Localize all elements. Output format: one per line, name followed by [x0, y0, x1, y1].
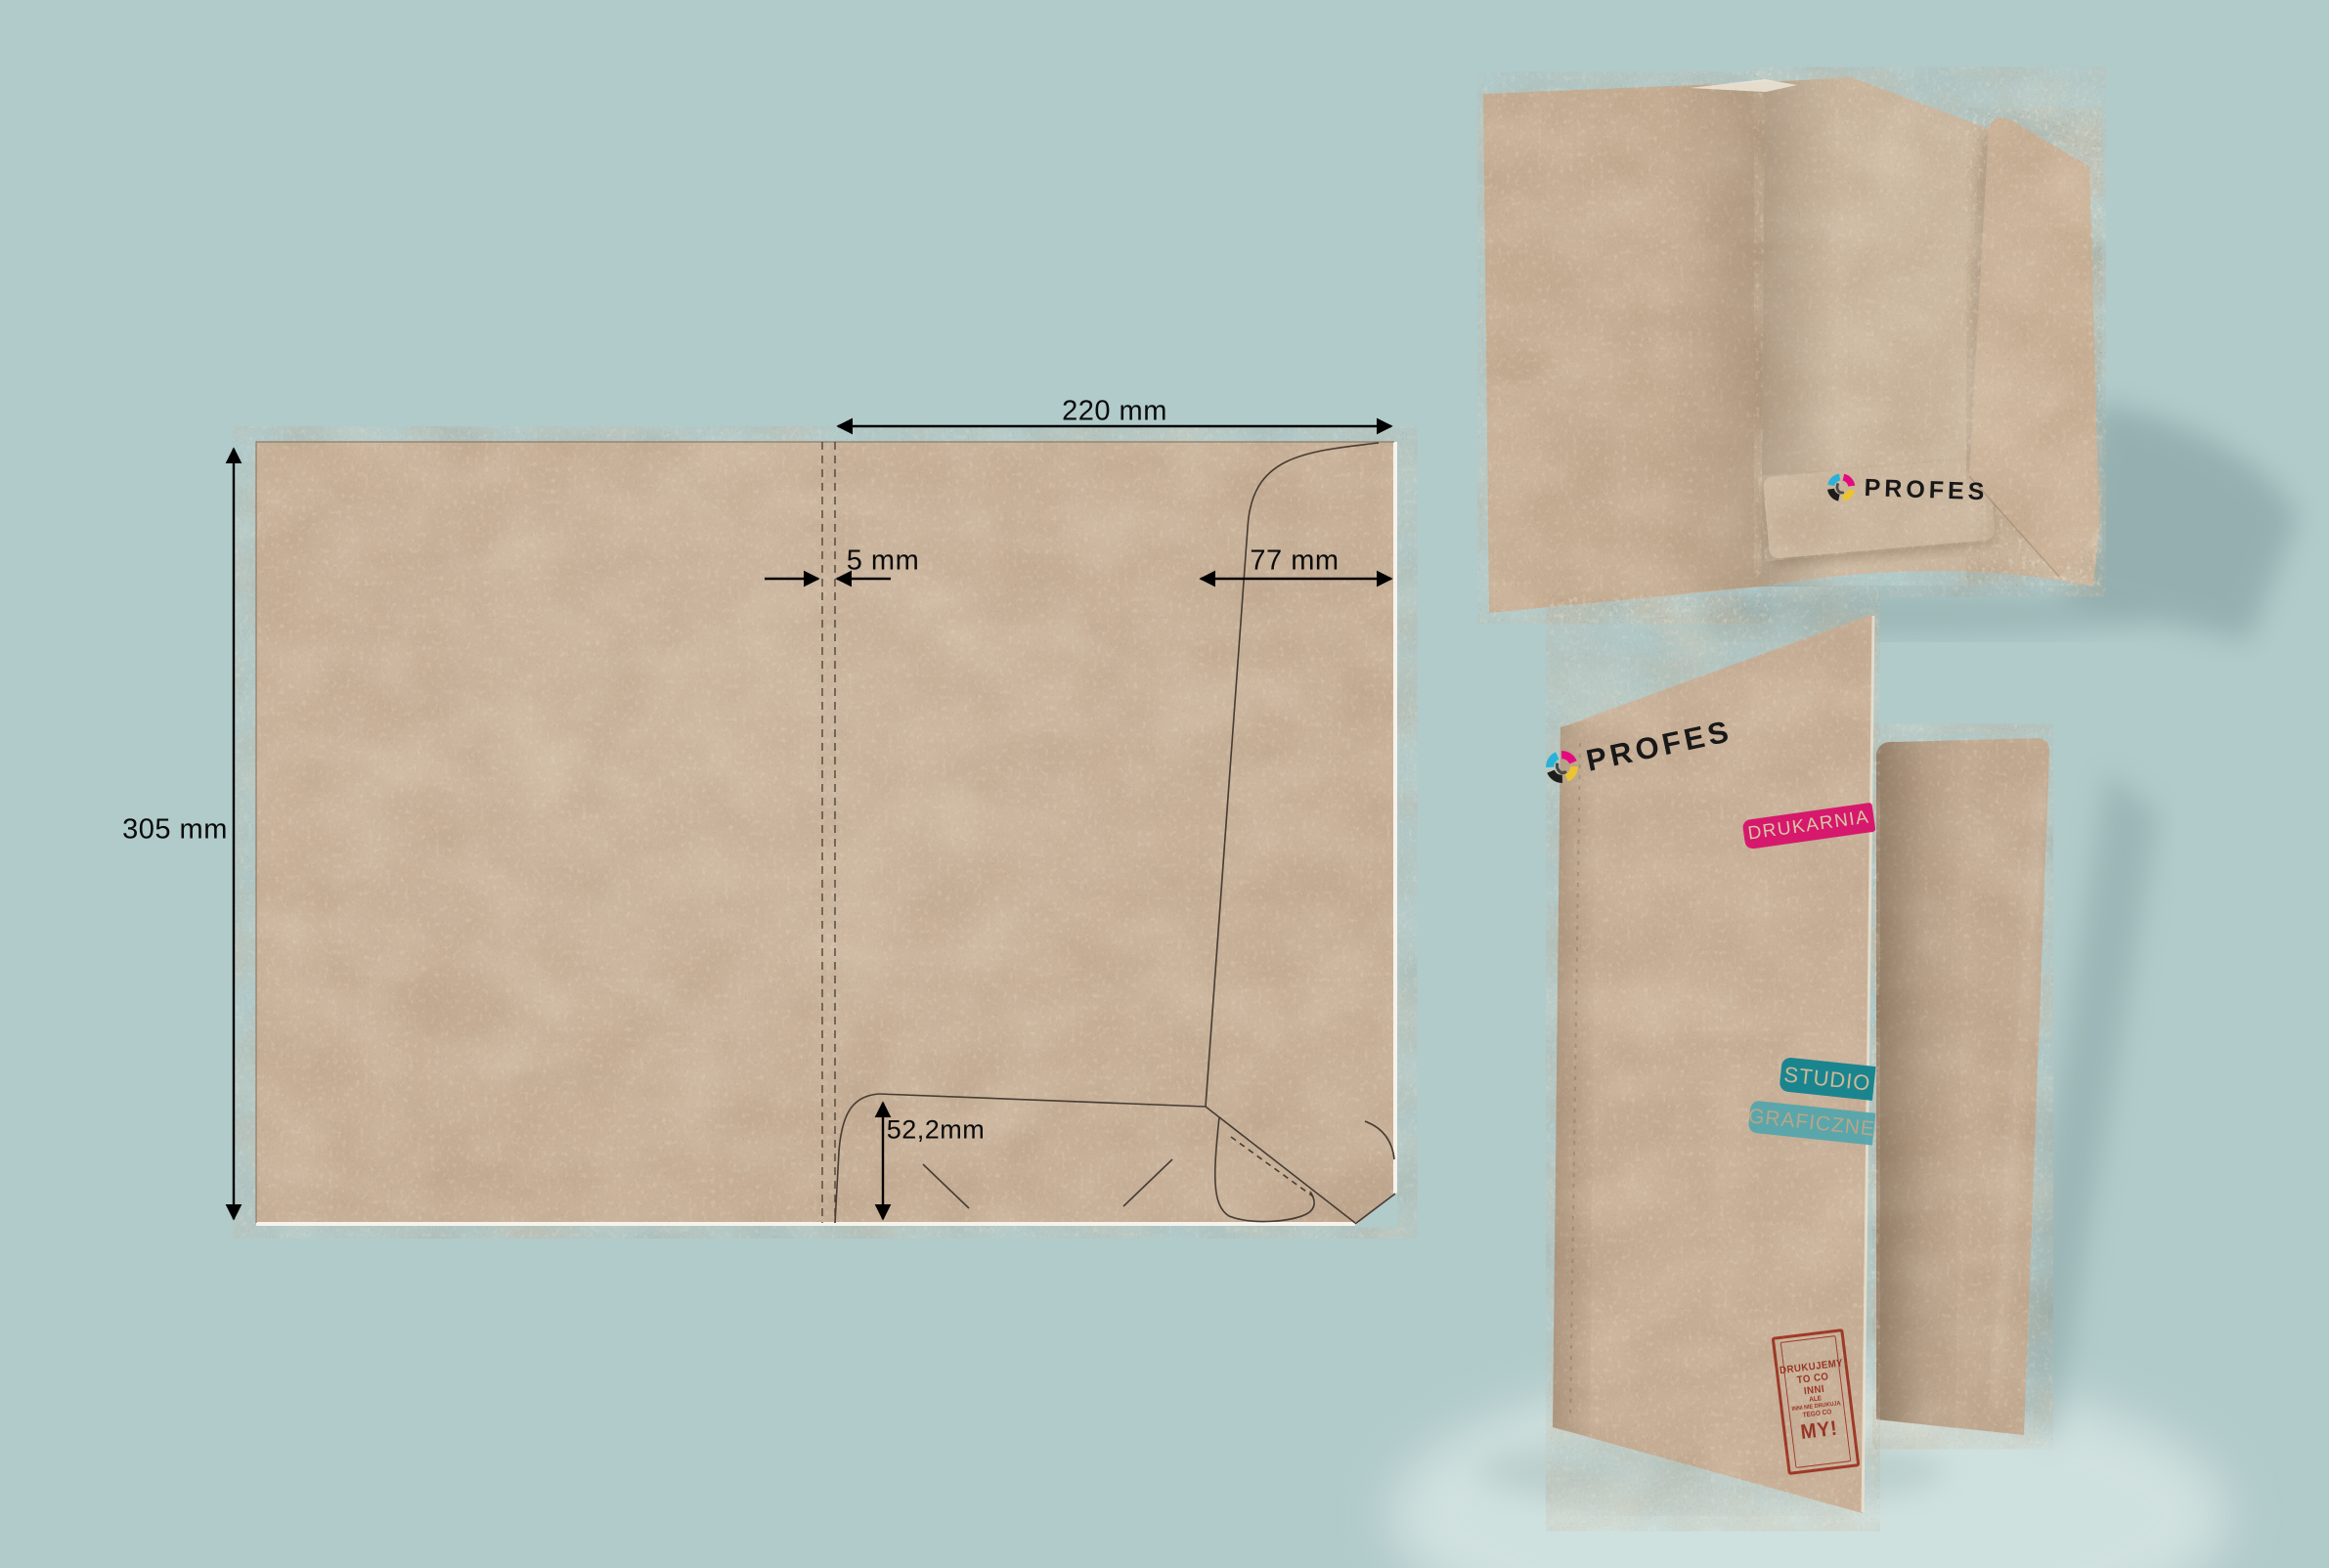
profes-logo-card: PROFES [1824, 471, 1989, 509]
dimension-width-label: 220 mm [1062, 396, 1167, 428]
dimension-spine-label: 5 mm [847, 545, 920, 578]
profes-wordmark: PROFES [1864, 474, 1989, 506]
scene: 220 mm 5 mm 77 mm 305 mm 52,2mm PROFES P… [0, 0, 2329, 1568]
stamp-line: MY! [1799, 1417, 1839, 1446]
dieline-sheet [234, 426, 1398, 1228]
scan-edge-bottom [256, 1222, 1397, 1226]
badge-label: STUDIO [1782, 1062, 1871, 1096]
dimension-pocket-label: 52,2mm [887, 1115, 986, 1146]
open-folder-mockup [1483, 77, 2298, 640]
scene-graphics [0, 0, 2329, 1568]
dimension-flap-label: 77 mm [1250, 545, 1339, 578]
stamp-line: TO CO INNI [1785, 1370, 1842, 1400]
dimension-height-label: 305 mm [122, 814, 228, 847]
scan-edge-right [1393, 442, 1397, 1225]
profes-logo-mark-icon [1540, 745, 1584, 789]
cast-shadow-bottom [1682, 590, 2151, 637]
profes-logo-mark-icon [1824, 471, 1858, 504]
